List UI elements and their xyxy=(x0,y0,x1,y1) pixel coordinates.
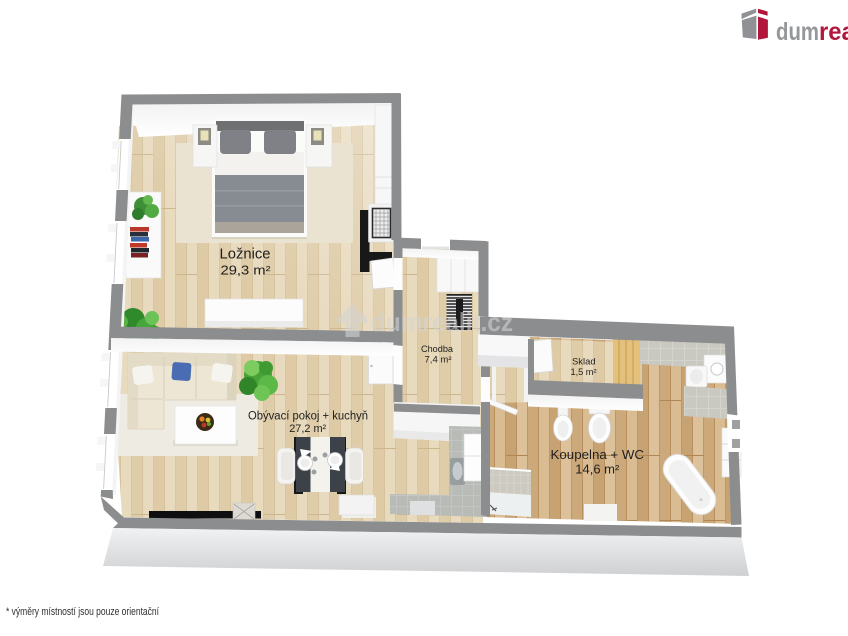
svg-text:Obývací pokoj + kuchyň: Obývací pokoj + kuchyň xyxy=(248,411,368,423)
svg-text:realit: realit xyxy=(819,18,848,46)
svg-text:29,3 m²: 29,3 m² xyxy=(221,263,271,277)
svg-text:dumrealit.cz: dumrealit.cz xyxy=(371,307,513,337)
svg-text:7,4 m²: 7,4 m² xyxy=(425,354,452,364)
svg-text:1,5 m²: 1,5 m² xyxy=(571,367,597,377)
svg-text:dum: dum xyxy=(776,18,819,46)
svg-text:27,2 m²: 27,2 m² xyxy=(289,423,326,435)
svg-text:* výměry místností jsou pouze: * výměry místností jsou pouze orientační xyxy=(6,606,159,618)
svg-text:Koupelna + WC: Koupelna + WC xyxy=(551,447,645,462)
svg-text:Chodba: Chodba xyxy=(421,344,453,354)
svg-text:Ložnice: Ložnice xyxy=(220,247,271,263)
svg-text:Sklad: Sklad xyxy=(572,357,596,367)
svg-text:14,6 m²: 14,6 m² xyxy=(575,461,620,476)
